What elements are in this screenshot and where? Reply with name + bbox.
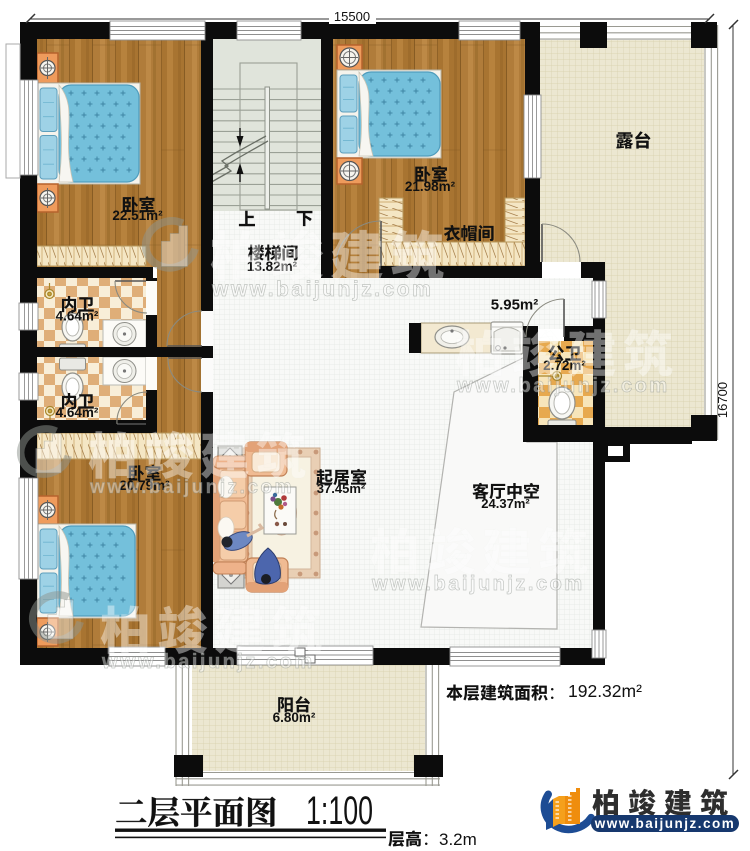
svg-text:21.98m²: 21.98m² xyxy=(405,179,456,194)
svg-text:15500: 15500 xyxy=(334,9,370,24)
svg-text:4.64m²: 4.64m² xyxy=(56,309,99,324)
svg-text:5.95m²: 5.95m² xyxy=(491,297,539,314)
svg-text:www.baijunjz.com: www.baijunjz.com xyxy=(211,278,433,301)
svg-text:www.baijunjz.com: www.baijunjz.com xyxy=(89,477,294,498)
svg-text:：3.2m: ：3.2m xyxy=(422,830,477,849)
svg-text:192.32m²: 192.32m² xyxy=(568,681,642,701)
svg-text:www.baijunjz.com: www.baijunjz.com xyxy=(371,573,585,595)
svg-text:6.80m²: 6.80m² xyxy=(273,710,316,725)
svg-text:1:100: 1:100 xyxy=(306,789,373,833)
svg-text:4.64m²: 4.64m² xyxy=(56,405,99,420)
svg-text:www.baijunjz.com: www.baijunjz.com xyxy=(456,375,670,397)
svg-text:22.51m²: 22.51m² xyxy=(112,208,163,223)
svg-text:24.37m²: 24.37m² xyxy=(481,496,530,511)
svg-text:www.baijunjz.com: www.baijunjz.com xyxy=(594,816,736,831)
svg-text:：: ： xyxy=(548,684,565,703)
svg-text:www.baijunjz.com: www.baijunjz.com xyxy=(101,651,315,673)
svg-text:16700: 16700 xyxy=(715,382,730,418)
svg-text:37.45m²: 37.45m² xyxy=(317,481,366,496)
